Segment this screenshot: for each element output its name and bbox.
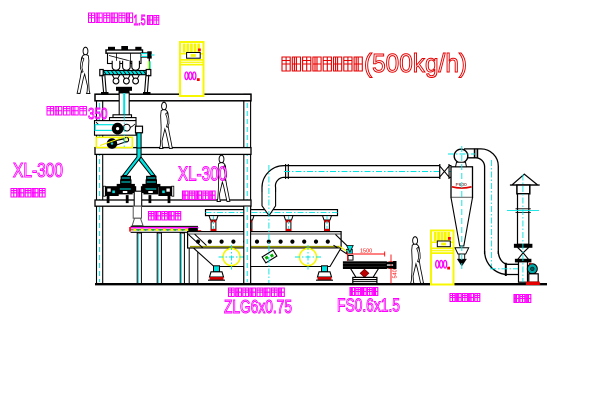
svg-text:1500: 1500 — [360, 249, 372, 255]
svg-text:P600: P600 — [456, 182, 468, 188]
svg-text:(500kg/h): (500kg/h) — [364, 48, 467, 78]
svg-text:1.5: 1.5 — [134, 12, 146, 29]
svg-text:540: 540 — [393, 269, 399, 278]
svg-text:XL-300: XL-300 — [178, 164, 227, 186]
svg-text:XL-300: XL-300 — [13, 160, 63, 182]
svg-text:ZLG6x0.75: ZLG6x0.75 — [224, 296, 292, 317]
svg-text:FS0.6x1.5: FS0.6x1.5 — [337, 295, 400, 316]
